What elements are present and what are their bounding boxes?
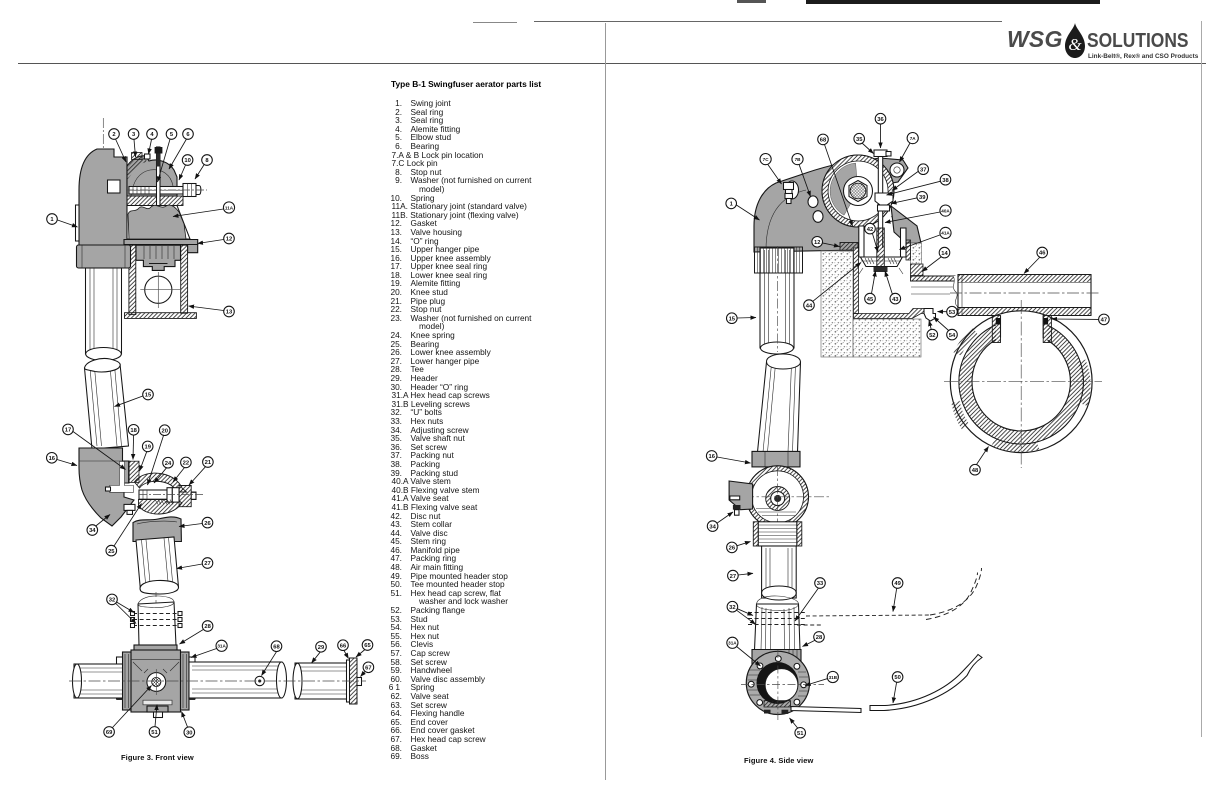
svg-text:51: 51 <box>797 731 804 737</box>
svg-text:12: 12 <box>814 240 820 246</box>
svg-text:52: 52 <box>929 333 935 339</box>
svg-text:37: 37 <box>920 167 926 173</box>
svg-text:26: 26 <box>729 546 736 552</box>
svg-text:54: 54 <box>949 333 956 339</box>
svg-text:16: 16 <box>708 454 715 460</box>
svg-text:32: 32 <box>729 605 735 611</box>
svg-text:15: 15 <box>729 316 736 322</box>
svg-text:28: 28 <box>816 635 823 641</box>
svg-text:48: 48 <box>972 468 979 474</box>
svg-text:31B: 31B <box>829 675 838 680</box>
svg-text:41A: 41A <box>941 231 950 236</box>
svg-text:34: 34 <box>709 524 716 530</box>
svg-text:40A: 40A <box>941 208 950 213</box>
svg-text:46: 46 <box>1039 251 1046 257</box>
svg-text:42: 42 <box>867 227 873 233</box>
svg-text:7B: 7B <box>795 157 802 162</box>
svg-text:43: 43 <box>892 297 899 303</box>
svg-text:7C: 7C <box>763 157 770 162</box>
svg-text:44: 44 <box>806 303 813 309</box>
svg-text:39: 39 <box>919 195 926 201</box>
svg-text:53: 53 <box>949 310 956 316</box>
svg-text:31A: 31A <box>728 641 737 646</box>
svg-text:36: 36 <box>877 117 884 123</box>
svg-text:14: 14 <box>941 251 948 257</box>
svg-text:49: 49 <box>894 581 901 587</box>
svg-text:33: 33 <box>817 581 824 587</box>
svg-text:7A: 7A <box>910 136 917 141</box>
svg-text:45: 45 <box>867 297 874 303</box>
svg-text:35: 35 <box>856 137 863 143</box>
svg-text:38: 38 <box>942 178 949 184</box>
svg-text:27: 27 <box>730 574 736 580</box>
svg-text:50: 50 <box>894 675 900 681</box>
svg-text:47: 47 <box>1101 318 1107 324</box>
svg-text:68: 68 <box>820 138 827 144</box>
